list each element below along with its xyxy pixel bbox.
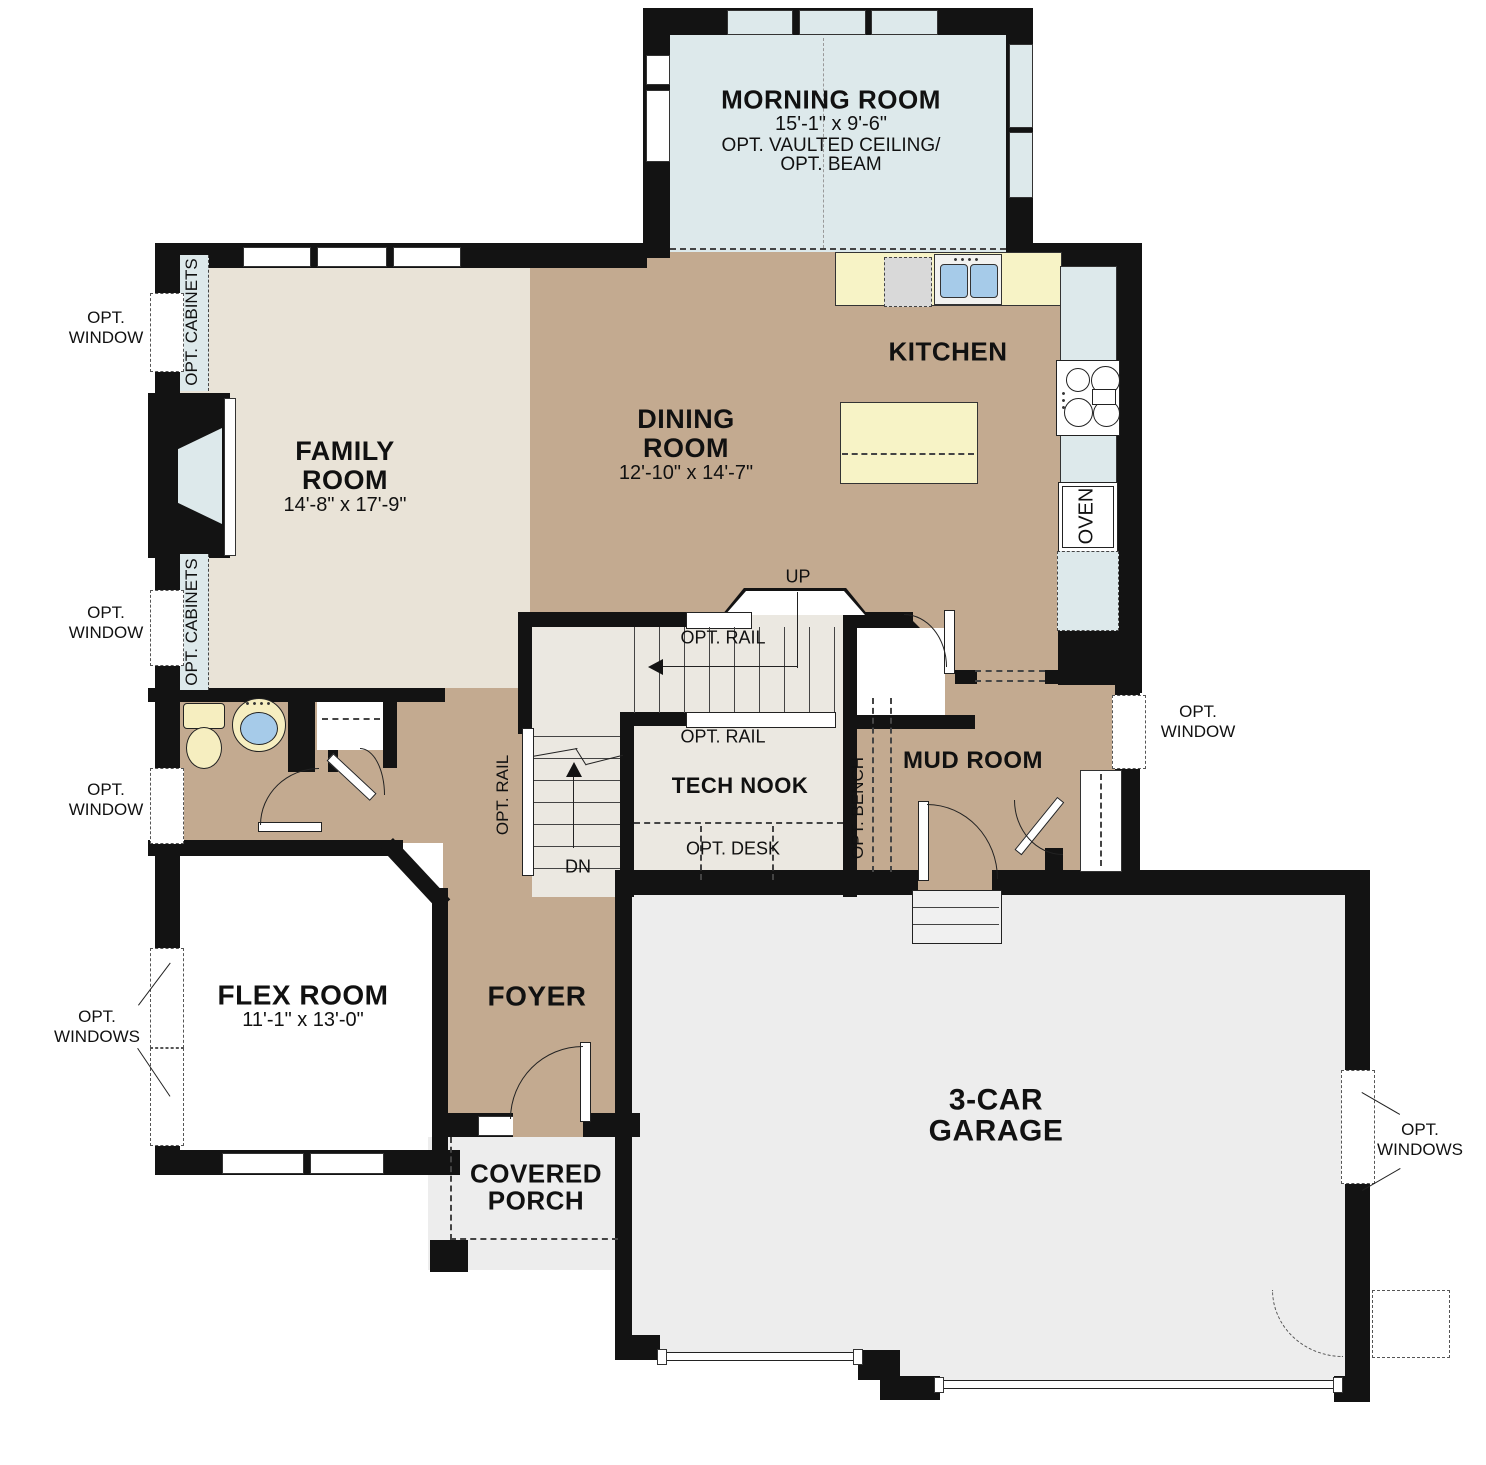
dn-guide-line — [573, 776, 574, 848]
stair-tread — [532, 736, 620, 737]
stair-tread — [532, 802, 620, 803]
wall-segment — [148, 840, 403, 856]
opt-bench-label: OPT. BENCH — [848, 757, 868, 859]
porch-label2: PORCH — [488, 1186, 584, 1217]
opt-window-label: OPT. WINDOW — [69, 603, 144, 643]
stair-tread — [532, 780, 620, 781]
dashed-opening — [670, 248, 1006, 250]
wall-segment — [615, 870, 632, 1340]
dining-room-label: DINING — [637, 404, 735, 436]
window — [1009, 44, 1033, 128]
opt-window-opening — [1341, 1070, 1375, 1184]
window — [243, 247, 311, 267]
opt-door-dashed — [1372, 1290, 1450, 1358]
opt-window-opening — [150, 948, 184, 1048]
opt-windows-label: OPT. WINDOWS — [54, 1007, 140, 1047]
wall-segment — [383, 694, 397, 768]
bench-dashed-line — [872, 698, 874, 872]
wall-segment — [620, 712, 690, 726]
opt-window-label: OPT. WINDOW — [1161, 702, 1236, 742]
island-dashed-line — [842, 453, 974, 455]
opt-window-opening — [150, 590, 184, 666]
opt-windows-label: OPT. WINDOWS — [1377, 1120, 1463, 1160]
opt-window-opening — [150, 1048, 184, 1146]
tech-nook-label: TECH NOOK — [672, 773, 809, 799]
dashed-opening — [975, 670, 1045, 672]
desk-dashed-line — [634, 822, 843, 824]
wall-segment — [1058, 628, 1123, 685]
wall-segment — [288, 702, 315, 772]
wall-segment — [880, 1376, 940, 1400]
opt-window-opening — [150, 293, 184, 372]
garage-steps — [912, 890, 1002, 944]
dining-room-dims: 12'-10" x 14'-7" — [619, 462, 753, 486]
burner — [1066, 368, 1090, 392]
porch-post — [430, 1240, 468, 1272]
stair-rail — [522, 728, 534, 876]
window — [310, 1153, 384, 1174]
dishwasher-icon — [884, 257, 932, 307]
family-room-label2: ROOM — [302, 465, 388, 497]
opt-window-opening — [150, 768, 184, 844]
sink-basin — [940, 264, 968, 298]
cooktop-dots — [1060, 390, 1067, 411]
garage-door-cap — [934, 1377, 944, 1393]
sink-basin — [970, 264, 998, 298]
foyer-floor — [443, 840, 533, 1115]
fireplace-mantel — [224, 398, 236, 556]
toilet-icon — [186, 727, 222, 769]
window — [222, 1153, 304, 1174]
wall-segment — [1115, 243, 1142, 693]
garage-door-cap — [1333, 1377, 1343, 1393]
window — [727, 10, 793, 35]
window — [1009, 132, 1033, 198]
wall-segment — [155, 1150, 460, 1175]
stair-tread — [532, 824, 620, 825]
garage-floor-ext — [897, 1353, 1345, 1381]
porch-dashed-edge — [450, 1238, 618, 1240]
dining-room-label2: ROOM — [643, 433, 729, 465]
kitchen-island — [840, 402, 978, 484]
kitchen-label: KITCHEN — [888, 337, 1007, 368]
stair-tread — [809, 627, 810, 713]
opt-cabinets-label: OPT. CABINETS — [182, 558, 202, 686]
stair-tread — [784, 627, 785, 713]
window — [871, 10, 938, 35]
opt-rail-label: OPT. RAIL — [680, 726, 765, 747]
garage-door-cap — [853, 1349, 863, 1365]
morning-room-label: MORNING ROOM — [721, 85, 941, 116]
window-sidelite — [478, 1116, 515, 1136]
wall-segment — [955, 670, 977, 684]
wall-segment — [843, 715, 975, 729]
floor-plan: OVEN — [0, 0, 1486, 1465]
wall-segment — [530, 612, 687, 627]
cooktop-control — [1092, 389, 1116, 405]
stair-tread — [532, 846, 620, 847]
opt-desk-label: OPT. DESK — [686, 838, 780, 859]
sink-dots — [244, 700, 274, 707]
hall-closet — [317, 702, 383, 750]
window — [646, 55, 670, 85]
dashed-opening — [975, 680, 1045, 682]
up-guide-line — [662, 666, 797, 667]
closet-rod-dashed — [1100, 774, 1102, 866]
window — [393, 247, 461, 267]
closet-rod-dashed — [322, 718, 380, 720]
wall-segment — [518, 612, 532, 734]
step-line — [913, 907, 999, 908]
garage-label2: GARAGE — [929, 1113, 1064, 1148]
arrow-left-icon — [648, 659, 663, 675]
step-line — [913, 924, 999, 925]
opt-cabinets-label: OPT. CABINETS — [182, 258, 202, 386]
garage-door-cap — [657, 1349, 667, 1365]
opt-rail-label-vertical: OPT. RAIL — [493, 755, 513, 835]
opt-window-label: OPT. WINDOW — [69, 308, 144, 348]
morning-room-note2: OPT. BEAM — [780, 154, 881, 176]
up-guide-line — [797, 592, 798, 668]
flex-room-label: FLEX ROOM — [218, 978, 389, 1011]
sink-water — [240, 712, 278, 745]
window — [646, 90, 670, 162]
faucet-dots — [952, 256, 980, 262]
vanity-icon — [183, 703, 225, 729]
garage-door — [941, 1380, 1335, 1389]
morning-room-dims: 15'-1" x 9'-6" — [775, 113, 887, 137]
family-room-dims: 14'-8" x 17'-9" — [283, 494, 406, 518]
flex-room-dims: 11'-1" x 13'-0" — [242, 1009, 364, 1033]
wall-segment — [620, 712, 634, 897]
stair-tread — [834, 627, 835, 713]
opt-window-opening — [1112, 695, 1146, 769]
window — [799, 10, 866, 35]
up-label: UP — [785, 566, 810, 587]
mud-room-label: MUD ROOM — [903, 747, 1043, 775]
porch-dashed-edge — [450, 1137, 452, 1240]
oven-label: OVEN — [1076, 488, 1099, 545]
burner — [1064, 398, 1093, 427]
opt-window-label: OPT. WINDOW — [69, 780, 144, 820]
bench-dashed-line — [890, 698, 892, 872]
arrow-up-icon — [566, 762, 582, 777]
dining-kitchen-floor — [530, 252, 1060, 615]
garage-door — [664, 1352, 856, 1361]
opt-rail-label: OPT. RAIL — [680, 627, 765, 648]
fridge-opt — [1057, 551, 1119, 631]
wall-segment — [615, 1335, 660, 1360]
family-room-label: FAMILY — [295, 436, 395, 468]
window — [317, 247, 387, 267]
stair-tread — [634, 627, 635, 713]
wall-segment — [148, 688, 445, 702]
foyer-label: FOYER — [488, 979, 587, 1012]
dn-label: DN — [565, 856, 591, 877]
wall-segment — [615, 878, 847, 895]
